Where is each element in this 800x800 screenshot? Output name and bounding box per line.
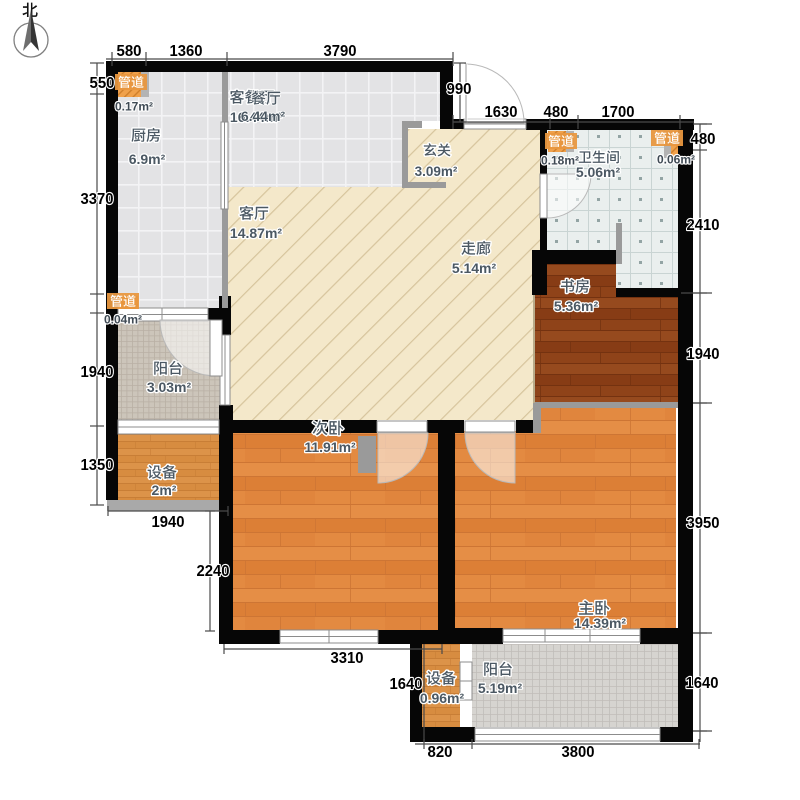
- svg-text:1640: 1640: [390, 676, 423, 693]
- svg-text:0.04m²: 0.04m²: [104, 312, 142, 326]
- svg-text:6.44m²: 6.44m²: [241, 108, 286, 124]
- svg-text:480: 480: [691, 131, 716, 148]
- svg-text:2m²: 2m²: [152, 482, 177, 498]
- svg-text:3790: 3790: [324, 43, 357, 60]
- svg-text:5.36m²: 5.36m²: [554, 298, 599, 314]
- svg-text:3370: 3370: [81, 191, 114, 208]
- svg-text:990: 990: [447, 81, 472, 98]
- svg-text:3.03m²: 3.03m²: [147, 379, 192, 395]
- svg-text:0.17m²: 0.17m²: [115, 99, 153, 113]
- svg-text:580: 580: [117, 43, 142, 60]
- svg-text:0.06m²: 0.06m²: [657, 152, 695, 166]
- svg-text:3800: 3800: [562, 744, 595, 761]
- svg-text:2410: 2410: [687, 217, 720, 234]
- svg-text:5.14m²: 5.14m²: [452, 260, 497, 276]
- svg-text:480: 480: [544, 104, 569, 121]
- svg-text:3310: 3310: [331, 650, 364, 667]
- svg-text:1940: 1940: [81, 364, 114, 381]
- svg-text:3.09m²: 3.09m²: [415, 164, 458, 179]
- svg-text:1940: 1940: [687, 346, 720, 363]
- svg-text:11.91m²: 11.91m²: [304, 439, 356, 455]
- svg-text:0.96m²: 0.96m²: [420, 690, 465, 706]
- svg-text:1640: 1640: [686, 675, 719, 692]
- svg-text:1700: 1700: [602, 104, 635, 121]
- svg-text:550: 550: [90, 75, 115, 92]
- svg-text:3950: 3950: [687, 515, 720, 532]
- svg-text:6.9m²: 6.9m²: [129, 151, 166, 167]
- svg-text:820: 820: [428, 744, 453, 761]
- svg-text:2240: 2240: [197, 563, 230, 580]
- svg-text:1350: 1350: [81, 457, 114, 474]
- svg-text:5.19m²: 5.19m²: [478, 680, 523, 696]
- svg-text:0.18m²: 0.18m²: [541, 153, 579, 167]
- svg-text:1630: 1630: [485, 104, 518, 121]
- svg-text:14.87m²: 14.87m²: [230, 225, 282, 241]
- svg-text:5.06m²: 5.06m²: [576, 164, 621, 180]
- svg-text:1940: 1940: [152, 514, 185, 531]
- svg-text:14.39m²: 14.39m²: [574, 615, 626, 631]
- svg-text:1360: 1360: [170, 43, 203, 60]
